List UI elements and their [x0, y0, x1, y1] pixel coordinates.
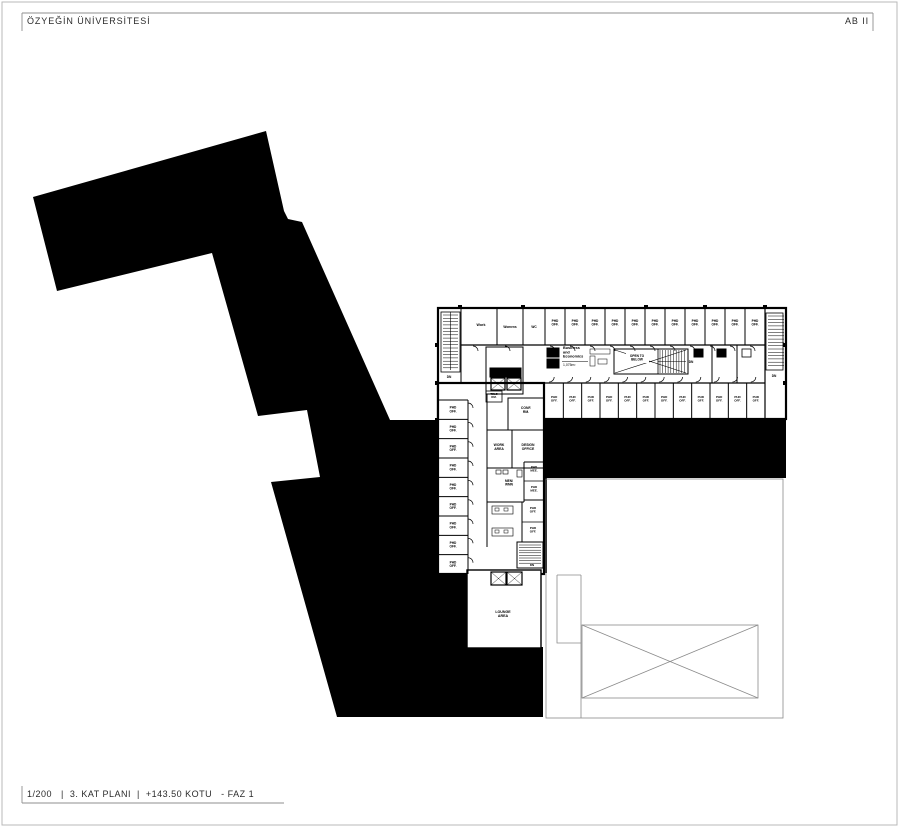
building-mass — [33, 131, 786, 717]
label-phd-office: PHDOFF. — [661, 395, 668, 402]
label-work-area: WORKAREA — [494, 443, 505, 451]
wall-pilaster — [521, 305, 525, 309]
wall-pilaster — [783, 343, 787, 347]
label-phd-office: PHDOFF. — [732, 319, 740, 327]
label-phd-office: PHDOFF. — [716, 395, 723, 402]
label-phd-office: PHDOFF. — [753, 395, 760, 402]
label-down: DN — [689, 360, 694, 364]
label-phd-office: PHDOFF. — [679, 395, 686, 402]
drawing-sheet: PHDOFF.PHDOFF.PHDOFF.PHDOFF.PHDOFF.PHDOF… — [0, 0, 900, 827]
label-phd-meeting: PHDMEE. — [530, 465, 538, 472]
wall-pilaster — [458, 305, 462, 309]
label-open-to-below: OPEN TOBELOW — [630, 354, 645, 362]
future-phase-outline — [546, 479, 783, 718]
label-womens: Womens — [503, 325, 516, 329]
wall-pilaster — [582, 305, 586, 309]
label-phd-office: PHDOFF. — [551, 395, 558, 402]
label-phd-office: PHDOFF. — [450, 522, 458, 530]
lounge-outline — [467, 570, 541, 648]
label-phd-office: PHDOFF. — [632, 319, 640, 327]
wall-pilaster — [435, 381, 439, 385]
floor-plan-canvas: PHDOFF.PHDOFF.PHDOFF.PHDOFF.PHDOFF.PHDOF… — [0, 0, 900, 827]
label-design-office: DESIGNOFFICE — [522, 443, 536, 451]
label-phd-office: PHDOFF. — [672, 319, 680, 327]
wall-pilaster — [763, 305, 767, 309]
label-down: DN — [772, 374, 777, 378]
label-phd-office: PHDOFF. — [698, 395, 705, 402]
wall-pilaster — [644, 305, 648, 309]
wc-fixture — [694, 349, 703, 357]
label-phd-office: PHDOFF. — [624, 395, 631, 402]
wall-pilaster — [435, 418, 439, 422]
label-phd-office: PHDOFF. — [450, 444, 458, 452]
title-university: ÖZYEĞİN ÜNİVERSİTESİ — [27, 16, 151, 26]
shaft-wall — [547, 359, 559, 368]
wall-pilaster — [435, 343, 439, 347]
label-phd-office: PHDOFF. — [450, 464, 458, 472]
title-project-code: AB II — [845, 16, 869, 26]
wall-pilaster — [435, 456, 439, 460]
label-men-wmn: MEN/WMN — [505, 479, 514, 487]
label-phd-office: PHDOFF. — [530, 506, 537, 513]
label-phd-office: PHDOFF. — [569, 395, 576, 402]
label-phd-office: PHDOFF. — [450, 406, 458, 414]
label-phd-office: PHDOFF. — [712, 319, 720, 327]
label-business-area: 1,075m² — [563, 363, 576, 367]
label-phd-office: PHDOFF. — [592, 319, 600, 327]
label-phd-office: PHDOFF. — [450, 425, 458, 433]
wall-pilaster — [783, 381, 787, 385]
wall-pilaster — [435, 532, 439, 536]
label-phd-office: PHDOFF. — [752, 319, 760, 327]
label-phd-office: PHDOFF. — [530, 526, 537, 533]
wall-pilaster — [435, 494, 439, 498]
label-phd-office: PHDOFF. — [552, 319, 560, 327]
label-phd-office: PHDOFF. — [450, 541, 458, 549]
label-phd-office: PHDOFF. — [692, 319, 700, 327]
label-phd-office: PHDOFF. — [734, 395, 741, 402]
label-phd-office: PHDOFF. — [450, 502, 458, 510]
label-phd-office: PHDOFF. — [450, 560, 458, 568]
label-work: Work — [477, 323, 486, 327]
title-block-footer: 1/200 | 3. KAT PLANI | +143.50 KOTU - FA… — [27, 789, 254, 799]
label-down: DN — [447, 375, 452, 379]
label-phd-office: PHDOFF. — [572, 319, 580, 327]
label-down: DN — [530, 563, 534, 567]
shaft-wall — [547, 348, 559, 357]
label-phd-office: PHDOFF. — [612, 319, 620, 327]
building-mass-east-band — [541, 420, 786, 573]
label-phd-meeting: PHDMEE. — [530, 485, 538, 492]
label-phd-office: PHDOFF. — [652, 319, 660, 327]
label-phd-office: PHDOFF. — [588, 395, 595, 402]
label-phd-office: PHDOFF. — [450, 483, 458, 491]
wall-pilaster — [435, 567, 439, 571]
label-phd-office: PHDOFF. — [606, 395, 613, 402]
wall-pilaster — [703, 305, 707, 309]
shaft-wall — [490, 368, 521, 377]
label-phd-office: PHDOFF. — [643, 395, 650, 402]
wc-fixture — [717, 349, 726, 357]
label-wc: WC — [531, 325, 537, 329]
